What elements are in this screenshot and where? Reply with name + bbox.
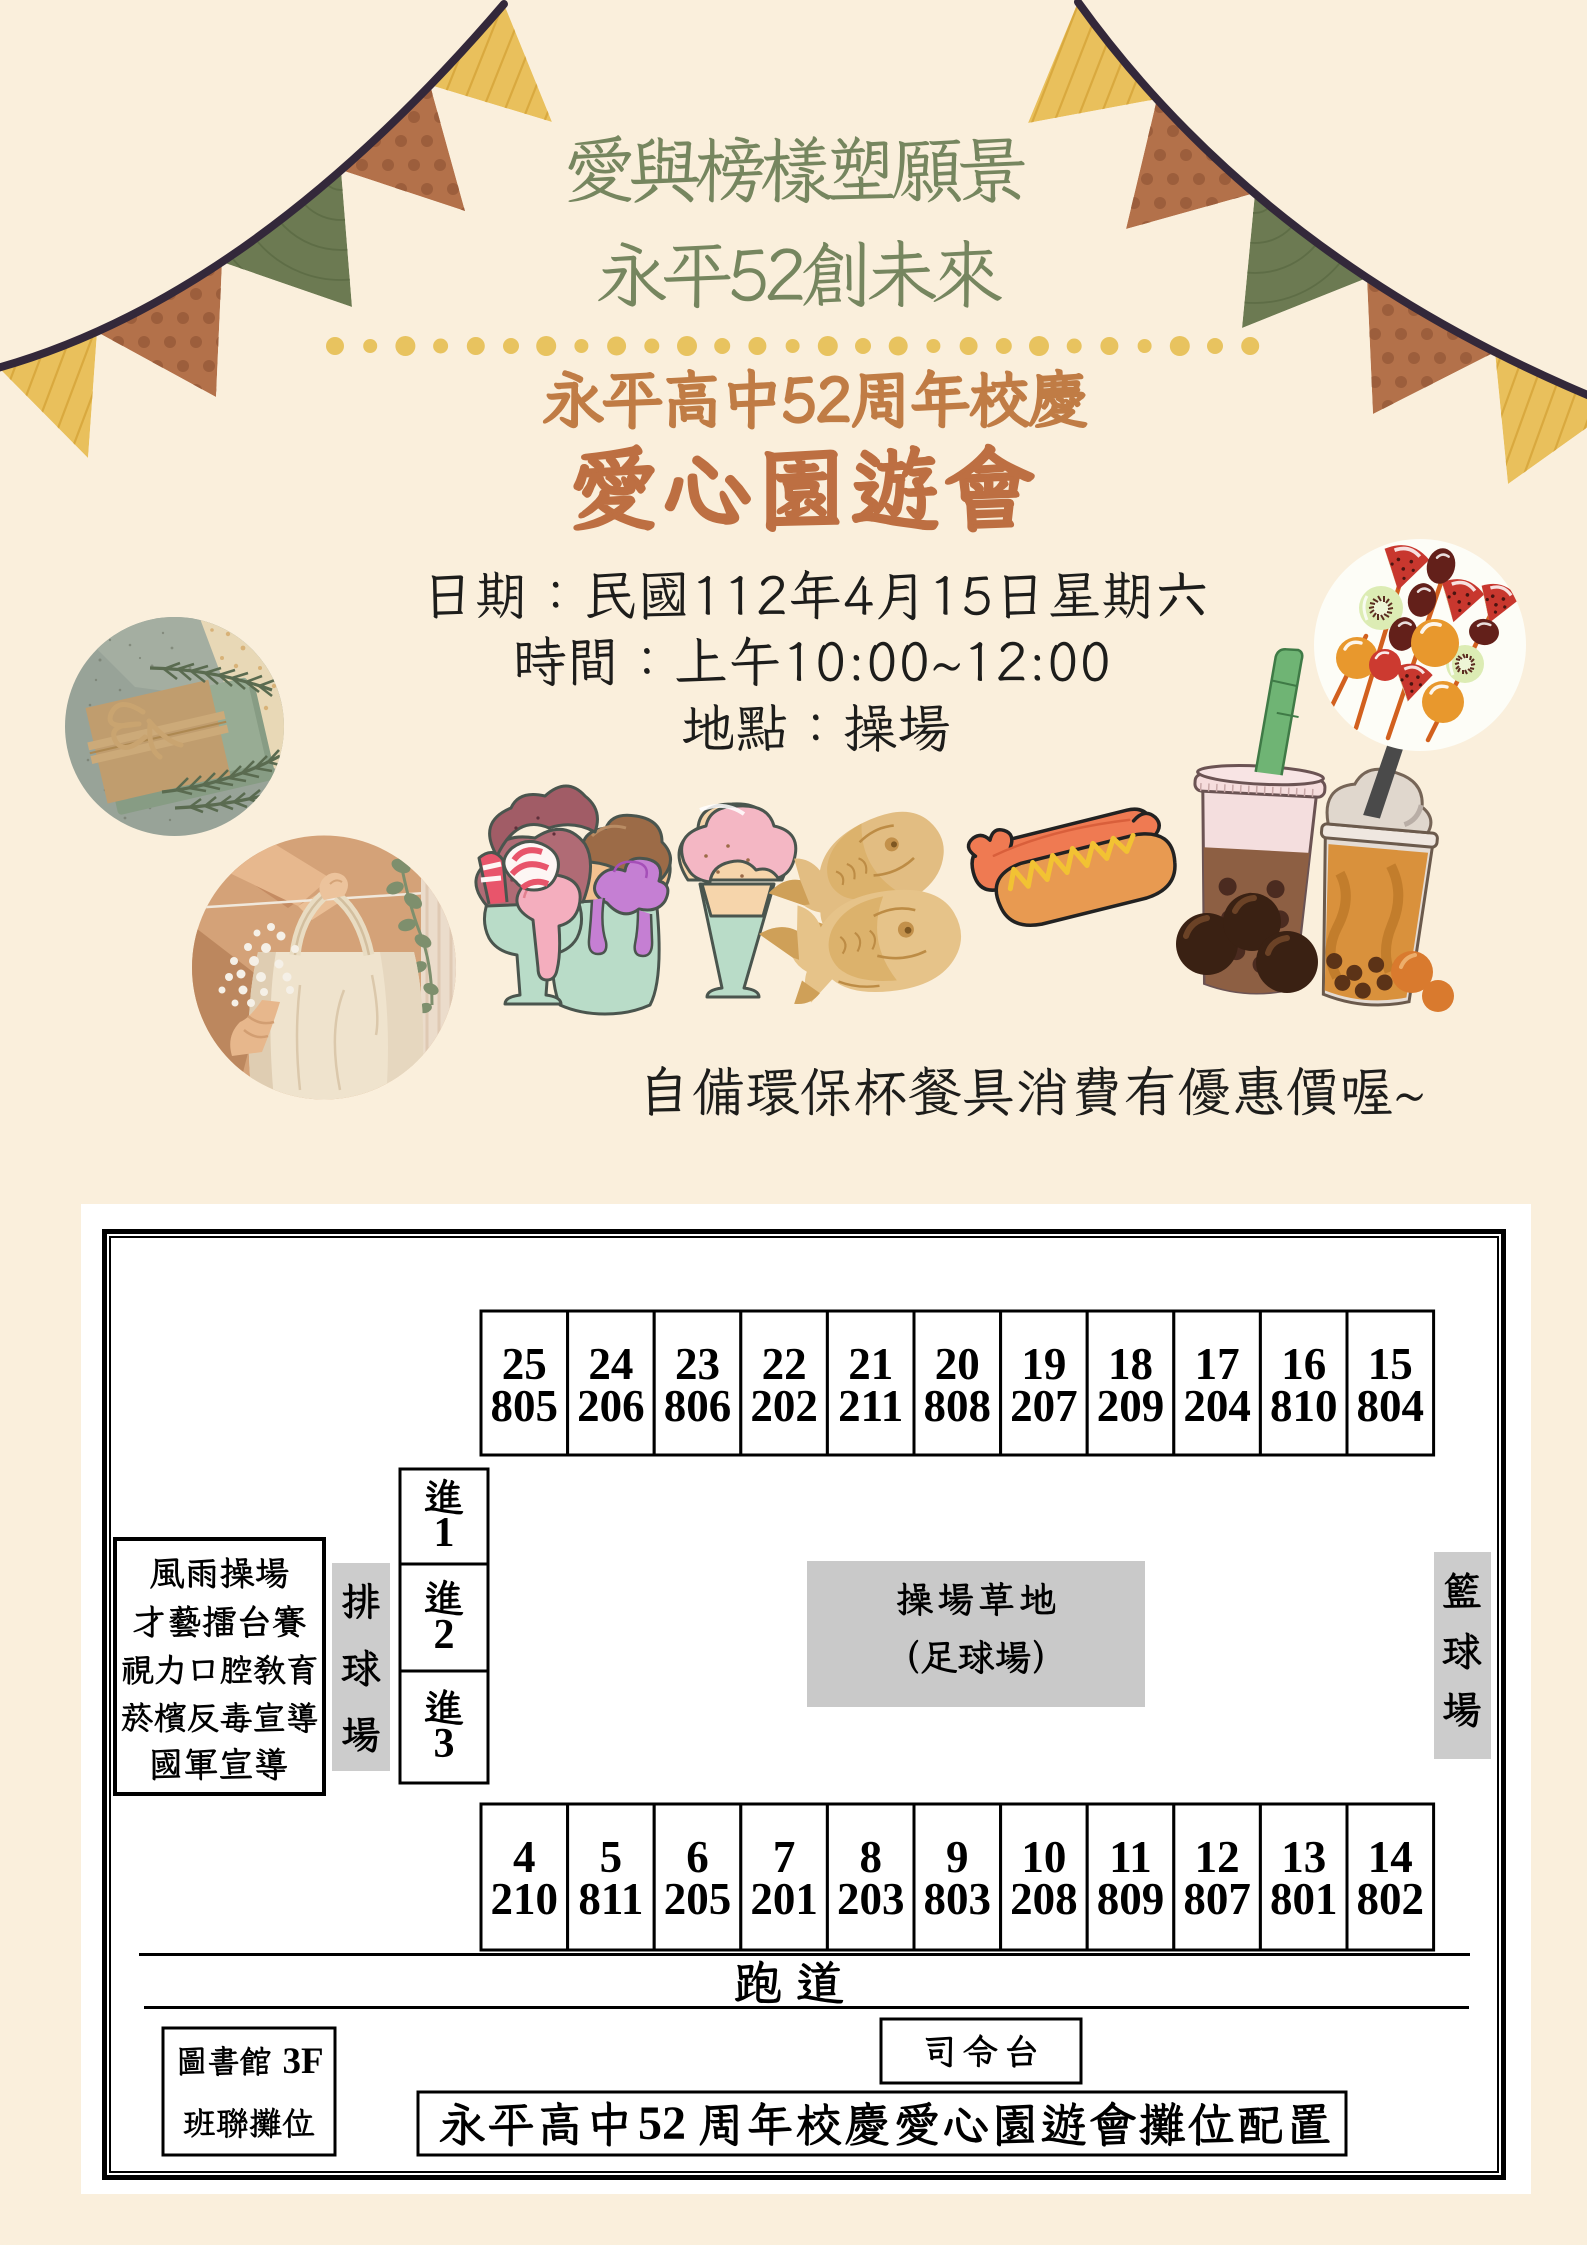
svg-text:206: 206 [577,1381,645,1431]
svg-text:207: 207 [1010,1381,1078,1431]
svg-text:2: 2 [434,1612,455,1658]
svg-text:810: 810 [1270,1381,1338,1431]
svg-text:52: 52 [638,2097,686,2150]
svg-text:3: 3 [434,1721,455,1767]
svg-text:209: 209 [1097,1381,1165,1431]
svg-text:1: 1 [434,1510,455,1556]
svg-text:203: 203 [837,1874,905,1924]
svg-text:808: 808 [924,1381,992,1431]
svg-text:202: 202 [750,1381,818,1431]
svg-text:3F: 3F [282,2041,323,2082]
svg-text:807: 807 [1183,1874,1251,1924]
svg-text:805: 805 [491,1381,559,1431]
svg-text:201: 201 [750,1874,818,1924]
svg-text:204: 204 [1183,1381,1251,1431]
svg-text:802: 802 [1357,1874,1425,1924]
svg-text:210: 210 [491,1874,559,1924]
svg-text:208: 208 [1010,1874,1078,1924]
svg-text:211: 211 [838,1381,903,1431]
svg-text:811: 811 [578,1874,643,1924]
svg-text:803: 803 [924,1874,992,1924]
svg-text:809: 809 [1097,1874,1165,1924]
svg-text:804: 804 [1357,1381,1425,1431]
svg-text:205: 205 [664,1874,732,1924]
svg-text:806: 806 [664,1381,732,1431]
svg-text:801: 801 [1270,1874,1338,1924]
